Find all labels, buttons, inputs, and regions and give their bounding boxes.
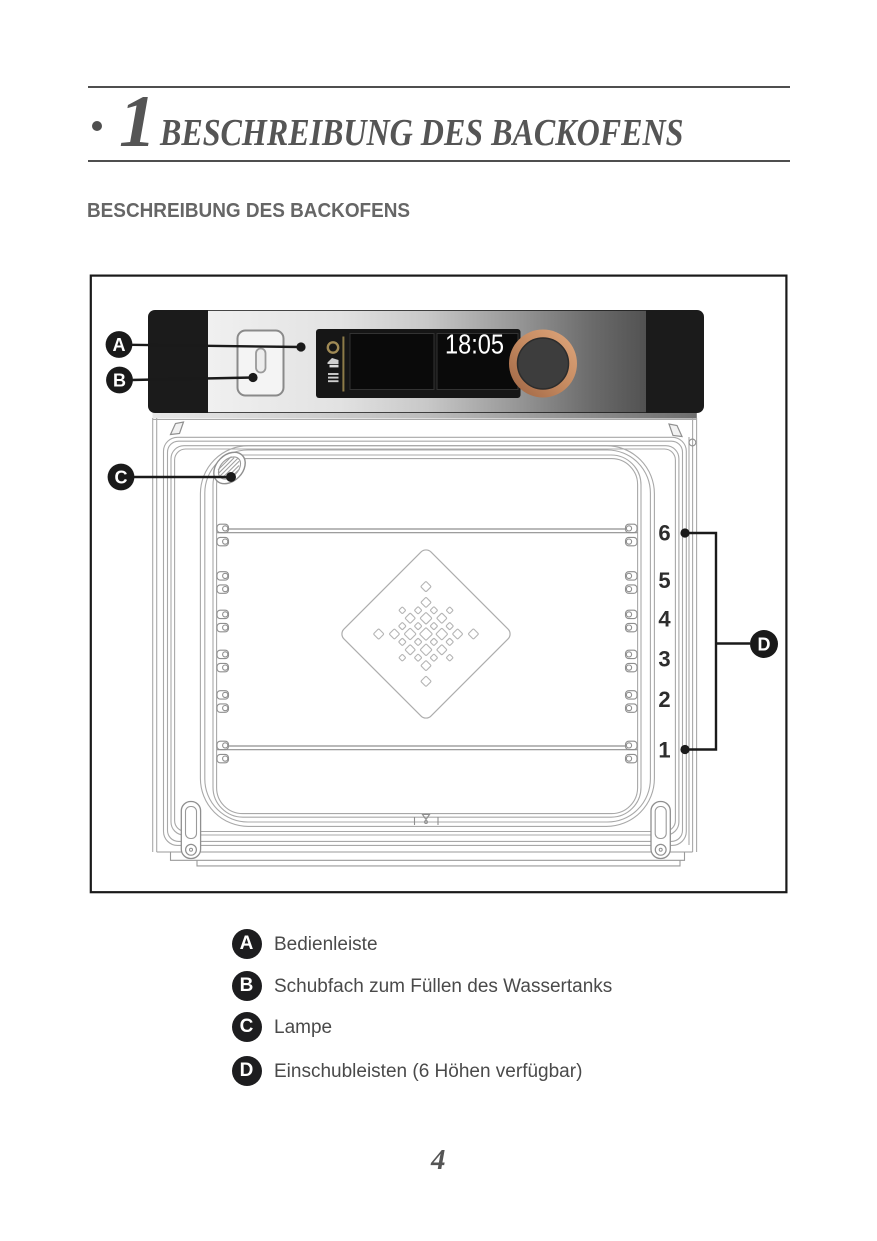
svg-text:3: 3: [658, 647, 670, 672]
svg-text:1: 1: [658, 738, 670, 763]
svg-text:C: C: [115, 468, 128, 488]
svg-text:D: D: [758, 635, 771, 655]
svg-text:4: 4: [658, 607, 671, 632]
svg-text:2: 2: [658, 687, 670, 712]
svg-text:5: 5: [658, 568, 670, 593]
svg-text:A: A: [113, 335, 126, 355]
svg-text:18:05: 18:05: [445, 329, 504, 360]
svg-text:6: 6: [658, 521, 670, 546]
svg-text:B: B: [113, 371, 126, 391]
